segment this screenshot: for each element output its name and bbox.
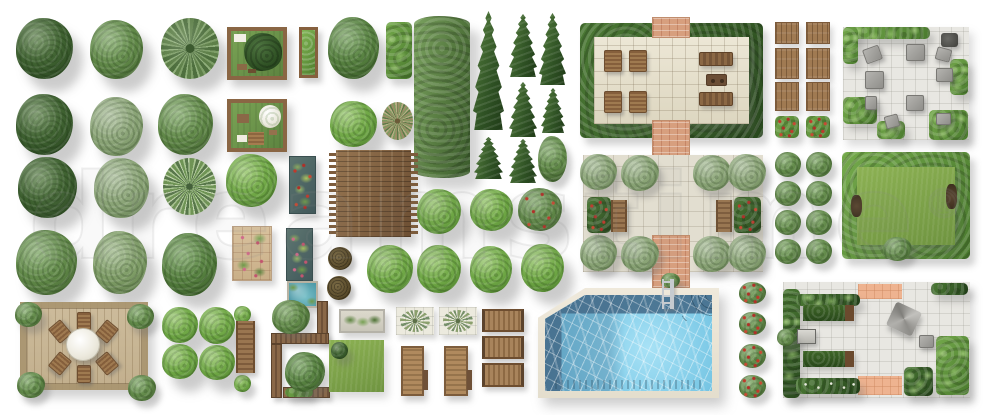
patio2-tree-7 bbox=[693, 236, 731, 272]
garden4-light-shrub-area bbox=[936, 336, 969, 395]
lawn-garden-soil-patch-right bbox=[946, 184, 957, 209]
flower-planter-tile-2 bbox=[806, 116, 830, 138]
garden4-gray-box bbox=[919, 335, 934, 348]
round-bush-bright bbox=[330, 101, 377, 147]
red-flower-bush-2 bbox=[739, 312, 766, 335]
round-tree-sage-r3c2 bbox=[94, 158, 149, 218]
boxwood-shrub-2 bbox=[470, 189, 513, 231]
small-conifer-1 bbox=[474, 137, 503, 179]
shrub-grid-1 bbox=[775, 152, 801, 177]
dining-chair-s bbox=[77, 365, 91, 383]
swimming-pool bbox=[538, 288, 719, 398]
stepping-stone-flower-tile bbox=[232, 226, 272, 281]
patio3-seat-6 bbox=[865, 96, 877, 110]
shrub-grid-7 bbox=[775, 239, 801, 264]
patio1-chair-4 bbox=[629, 91, 647, 113]
shrub-grid-8 bbox=[806, 239, 832, 264]
patio2-tree-2 bbox=[621, 155, 659, 191]
round-tree-medium-r1c4 bbox=[328, 17, 379, 79]
columnar-poplar-tree bbox=[414, 16, 470, 178]
vertical-flower-planter-1 bbox=[289, 156, 316, 214]
round-tree-medium-r2c3 bbox=[158, 94, 213, 155]
canvas: dreamstime® bbox=[0, 0, 992, 415]
wooden-bench-horizontal-3 bbox=[482, 363, 524, 387]
round-tree-dark-r2c1 bbox=[16, 94, 73, 155]
wooden-bench-vertical bbox=[236, 321, 255, 373]
wooden-bench-horizontal-1 bbox=[482, 309, 524, 332]
conifer-4 bbox=[509, 139, 537, 183]
shrub-grid-3 bbox=[775, 181, 801, 206]
patio2-tree-8 bbox=[728, 235, 766, 272]
round-planter-pot-1 bbox=[328, 247, 352, 270]
boxwood-shrub-6 bbox=[521, 244, 564, 292]
flowering-shrub-red bbox=[518, 188, 562, 231]
wood-deck-tile-4 bbox=[806, 48, 830, 79]
pergola-rug-deck bbox=[336, 150, 411, 237]
hedge-trough-planter bbox=[299, 27, 318, 78]
lawn-garden-center bbox=[857, 167, 955, 245]
flower-planter-tile-1 bbox=[775, 116, 799, 138]
dining-table-round bbox=[66, 328, 100, 361]
garden4-pink-paver-top bbox=[858, 284, 902, 299]
patio3-seat-9 bbox=[936, 113, 951, 125]
round-tree-medium-r1c2 bbox=[90, 20, 143, 79]
shrub-grid-2 bbox=[806, 152, 832, 177]
bottom-shrub-3 bbox=[162, 344, 198, 379]
wood-deck-tile-5 bbox=[775, 82, 799, 111]
agave-paver-tile-1 bbox=[396, 307, 434, 335]
patio3-seat-7 bbox=[906, 95, 924, 111]
garden4-hedge-bed-2 bbox=[803, 351, 854, 367]
small-bushy-tree bbox=[538, 136, 567, 182]
bottom-shrub-1 bbox=[162, 307, 198, 343]
patio2-flowerbed-left bbox=[587, 197, 611, 233]
patio3-seat-4 bbox=[865, 71, 884, 89]
shrub-grid-4 bbox=[806, 181, 832, 206]
patio2-bench-left bbox=[611, 200, 627, 232]
round-tree-medium-r4c3 bbox=[162, 233, 217, 296]
pool-water bbox=[545, 295, 712, 391]
small-palm-tan bbox=[382, 102, 413, 140]
tall-spruce-tree bbox=[473, 11, 504, 130]
yucca-plant bbox=[163, 158, 216, 215]
conifer-3 bbox=[509, 82, 537, 137]
bottom-shrub-2 bbox=[199, 307, 235, 344]
palm-tree-r1c3 bbox=[161, 18, 219, 79]
patio2-tree-5 bbox=[580, 235, 617, 271]
patio2-bench-right bbox=[716, 200, 732, 232]
conifer-5 bbox=[539, 13, 566, 85]
shrub-grid-5 bbox=[775, 210, 801, 235]
pool-underwater-bench bbox=[555, 380, 702, 389]
l-planter-tree-2 bbox=[285, 352, 325, 392]
patio1-coffee-table bbox=[706, 74, 727, 86]
sun-lounger-2 bbox=[444, 346, 468, 396]
boxwood-shrub-1 bbox=[417, 189, 461, 234]
patio2-tree-6 bbox=[621, 236, 659, 272]
wood-deck-tile-1 bbox=[775, 22, 799, 44]
gray-planter-with-shrubs bbox=[339, 309, 385, 333]
dining-deck-bush-2 bbox=[127, 304, 154, 329]
red-flower-bush-1 bbox=[739, 282, 766, 304]
l-planter-bar-h1 bbox=[271, 333, 329, 344]
garden-plot-wood-frame-1 bbox=[227, 27, 287, 80]
round-planter-pot-2 bbox=[327, 276, 351, 300]
dining-deck-bush-4 bbox=[128, 375, 156, 401]
round-tree-dark-r1c1 bbox=[16, 18, 73, 79]
lawn-dark-ball bbox=[331, 342, 348, 359]
bottom-shrub-4 bbox=[199, 345, 235, 380]
patio1-sofa-2 bbox=[699, 92, 733, 106]
shrub-grid-6 bbox=[806, 210, 832, 235]
garden4-left-tree bbox=[777, 329, 795, 346]
wood-deck-tile-3 bbox=[775, 48, 799, 79]
boxwood-shrub-5 bbox=[470, 246, 512, 293]
patio1-chair-3 bbox=[604, 91, 622, 113]
round-tree-dark-r3c1 bbox=[18, 157, 77, 218]
garden4-dark-shrub-square bbox=[904, 367, 933, 396]
patio1-brick-path-top bbox=[652, 17, 690, 38]
vertical-hedge-block bbox=[386, 22, 412, 79]
lawn-garden-bush bbox=[883, 237, 912, 261]
garden4-hedge-bottom-flowers bbox=[796, 378, 860, 394]
garden-plot-wood-frame-2 bbox=[227, 99, 287, 152]
dining-deck-bush-1 bbox=[15, 302, 42, 327]
patio1-chair-1 bbox=[604, 50, 622, 72]
patio3-seat-5 bbox=[936, 68, 953, 82]
patio2-tree-3 bbox=[693, 155, 731, 191]
conifer-6 bbox=[541, 88, 565, 133]
patio2-flowerbed-right bbox=[734, 197, 761, 233]
boxwood-shrub-3 bbox=[367, 245, 413, 293]
patio3-seat-2 bbox=[906, 44, 925, 61]
patio3-hedge-left-upper bbox=[843, 27, 858, 64]
round-bush-bright-2 bbox=[226, 154, 277, 207]
patio1-chair-2 bbox=[629, 50, 647, 72]
round-tree-light-r4c2 bbox=[93, 231, 147, 294]
lawn-garden-soil-patch-left bbox=[851, 195, 862, 217]
round-tree-sage-r2c2 bbox=[90, 97, 143, 156]
patio1-sofa-1 bbox=[699, 52, 733, 66]
wood-deck-tile-6 bbox=[806, 82, 830, 111]
conifer-2 bbox=[509, 14, 537, 77]
boxwood-shrub-4 bbox=[417, 245, 461, 293]
sun-lounger-1 bbox=[401, 346, 424, 396]
patio2-tree-4 bbox=[728, 154, 766, 191]
red-flower-bush-3 bbox=[739, 344, 766, 368]
garden4-bench bbox=[797, 329, 816, 344]
wooden-bench-horizontal-2 bbox=[482, 336, 524, 359]
vertical-flower-planter-2 bbox=[286, 228, 313, 281]
pool-ladder bbox=[662, 279, 674, 309]
garden4-hedge-top-right bbox=[931, 283, 968, 295]
patio3-grill bbox=[941, 33, 958, 47]
garden4-hedge-bed-1 bbox=[803, 305, 854, 321]
pool-corner-steps bbox=[682, 295, 712, 321]
l-planter-bar-v2 bbox=[271, 344, 282, 398]
l-planter-tree-1 bbox=[272, 300, 310, 334]
red-flower-bush-4 bbox=[739, 375, 766, 398]
wood-deck-tile-2 bbox=[806, 22, 830, 44]
pool-deck bbox=[538, 288, 719, 398]
round-tree-medium-r4c1 bbox=[16, 230, 77, 295]
dining-deck-bush-3 bbox=[17, 372, 45, 398]
agave-paver-tile-2 bbox=[439, 307, 477, 335]
patio2-tree-1 bbox=[580, 154, 617, 190]
small-green-ball-2 bbox=[234, 375, 251, 392]
garden4-pink-paver-bottom bbox=[858, 376, 902, 395]
